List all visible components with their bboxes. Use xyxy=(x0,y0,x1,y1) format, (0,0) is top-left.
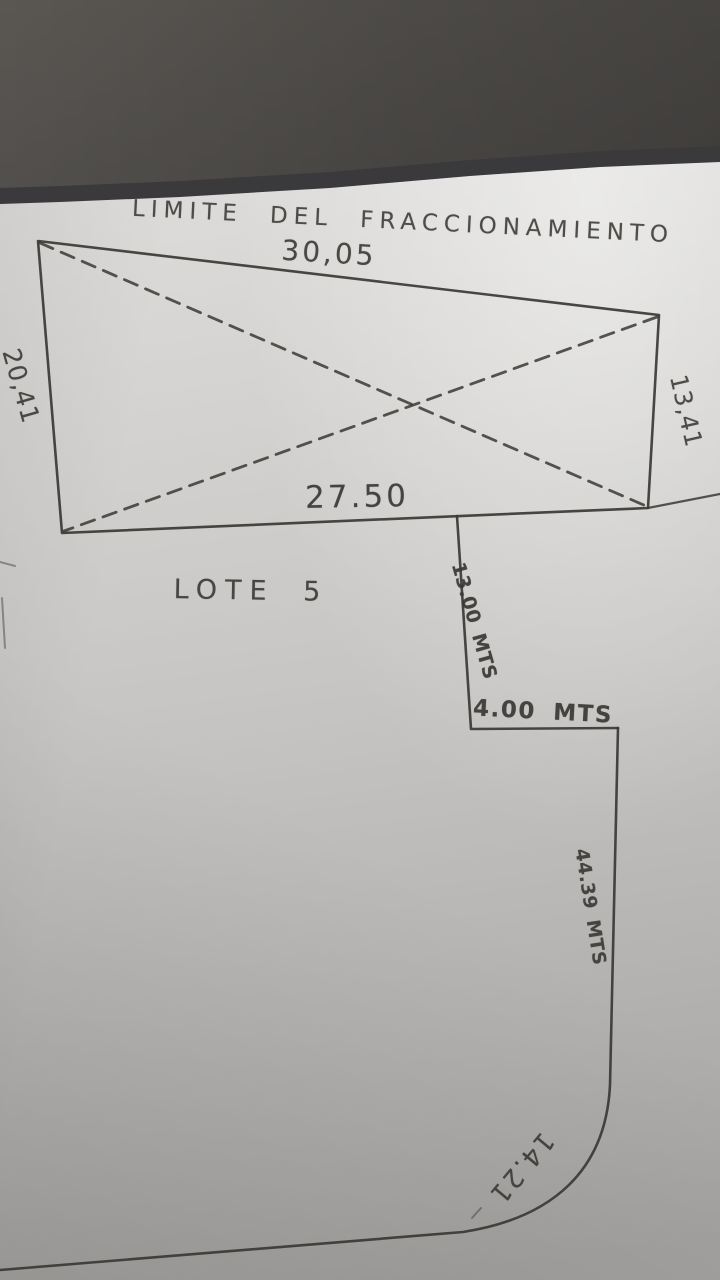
survey-drawing xyxy=(0,0,720,1280)
lot-5-label: LOTE 5 xyxy=(173,574,328,608)
curve-label-tick xyxy=(472,1208,481,1218)
diagonal-dashed-line-1 xyxy=(40,243,646,506)
plot-plan-photo: LIMITE DEL FRACCIONAMIENTO 30,05 20,41 1… xyxy=(0,0,720,1280)
east-side-and-curve-line xyxy=(0,728,618,1270)
dimension-bottom-27-50: 27.50 xyxy=(305,478,409,516)
left-edge-mark-1 xyxy=(0,562,15,566)
boundary-extension-line xyxy=(648,494,720,508)
dimension-top-30-05: 30,05 xyxy=(280,234,377,273)
left-edge-mark-2 xyxy=(2,598,5,648)
